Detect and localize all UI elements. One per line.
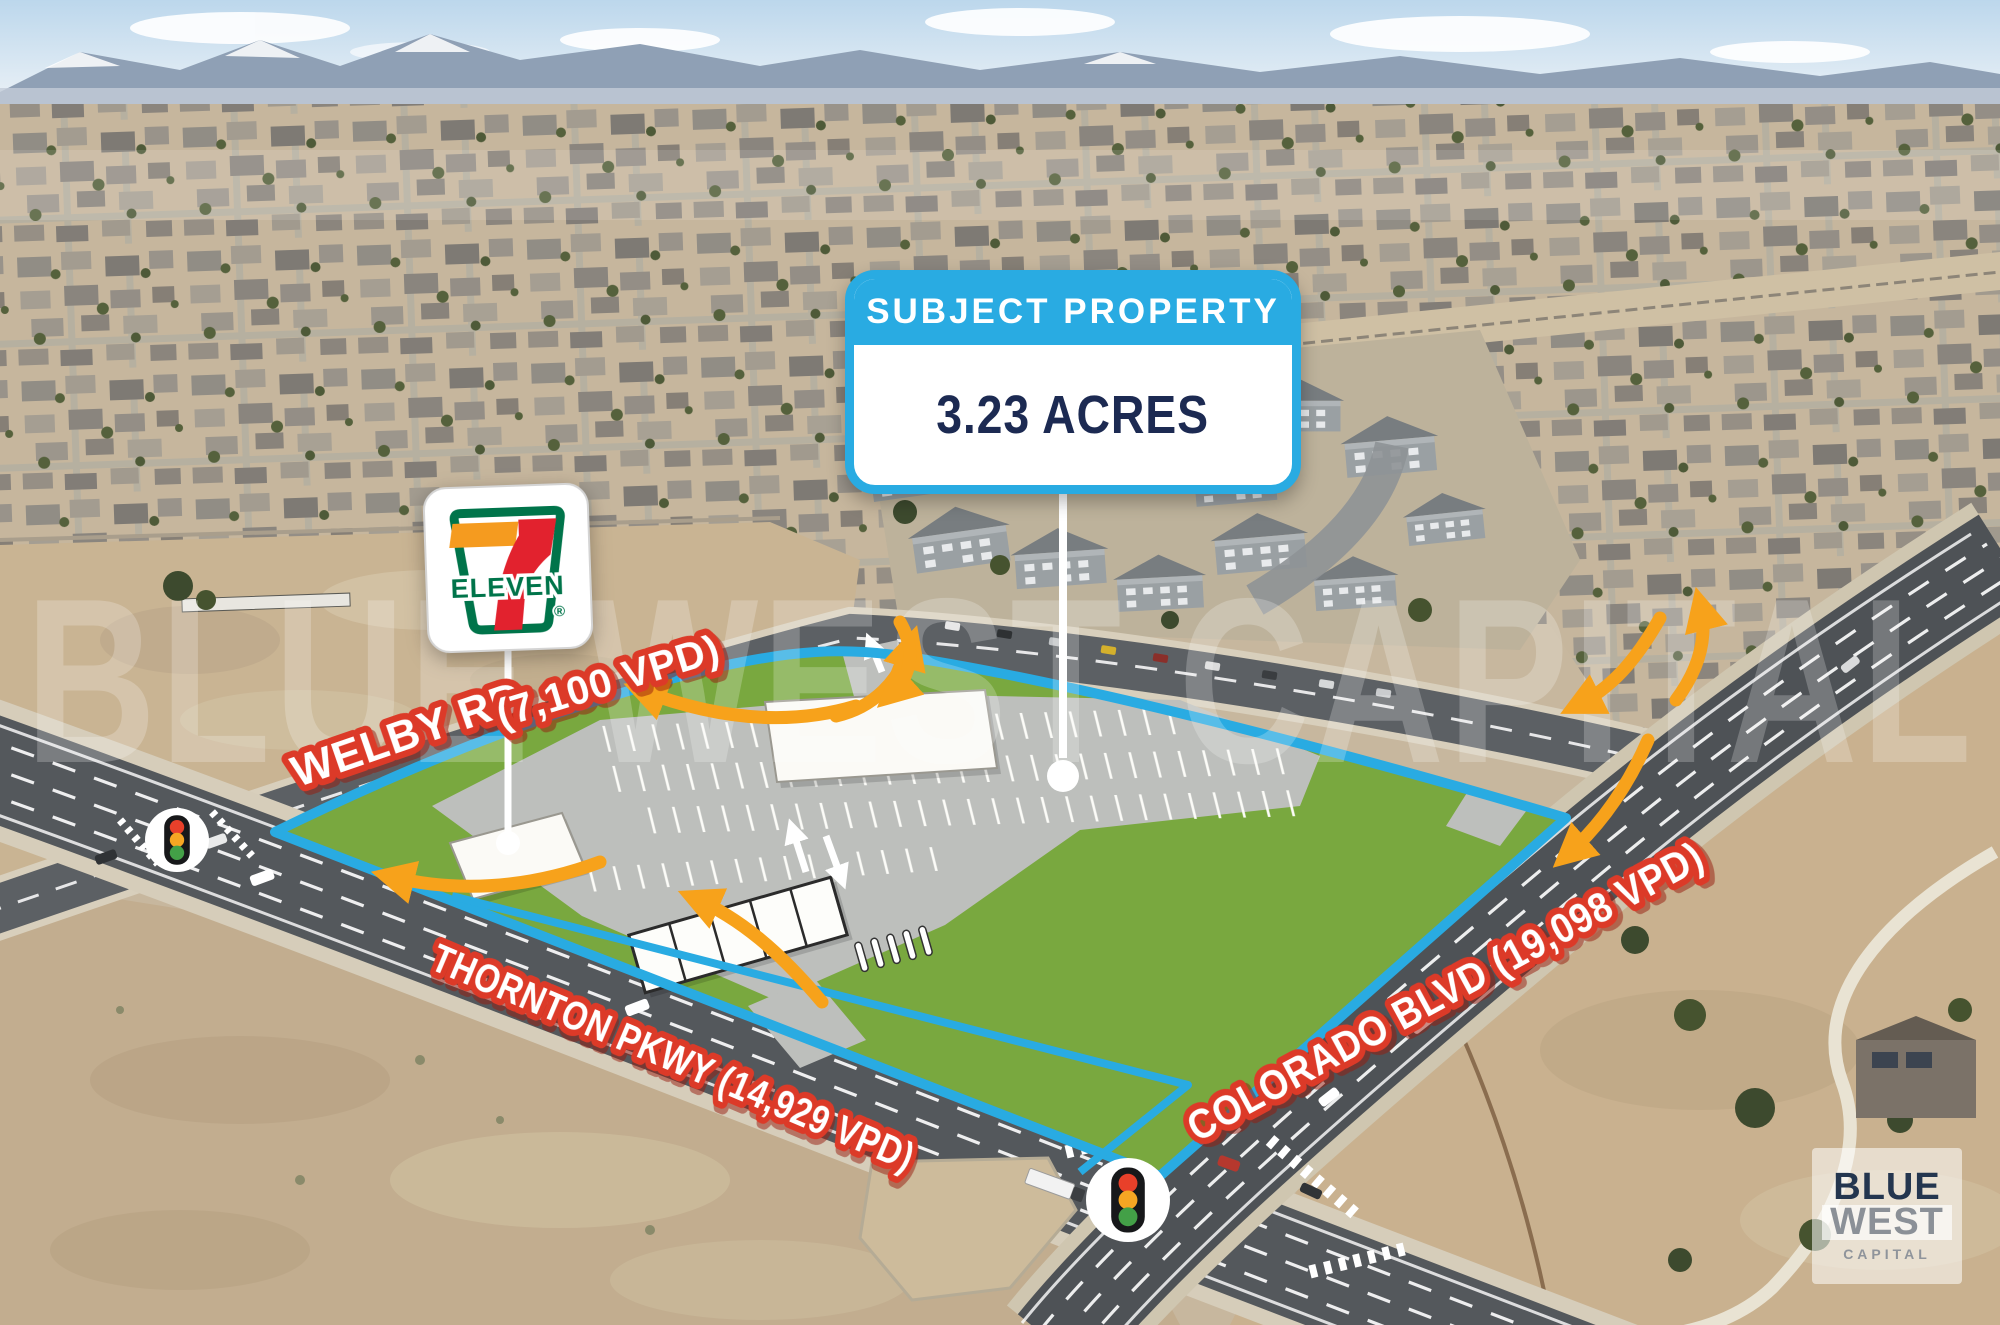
seven-eleven-logo: ELEVEN ® — [421, 481, 595, 655]
subject-property-callout: SUBJECT PROPERTY 3.23 ACRES — [845, 270, 1301, 494]
seven-eleven-sign: ELEVEN ® — [421, 481, 595, 655]
acreage-value: 3.23 ACRES — [937, 384, 1210, 446]
callout-body: 3.23 ACRES — [854, 345, 1292, 485]
broker-logo: BLUE WEST CAPITAL — [1812, 1148, 1962, 1284]
callout-header: SUBJECT PROPERTY — [854, 279, 1292, 345]
seven-eleven-pointer-dot — [496, 831, 520, 855]
callout-title: SUBJECT PROPERTY — [866, 292, 1280, 332]
aerial-property-map: BLUE WEST CAPITAL WELBY RD (7,100 VPD) T… — [0, 0, 2000, 1325]
traffic-light-icon — [145, 808, 209, 872]
subject-property-pointer-dot — [1047, 760, 1079, 792]
traffic-light-icon — [1086, 1158, 1170, 1242]
registered-mark: ® — [554, 603, 566, 620]
seven-numeral-bar — [448, 522, 519, 548]
atmospheric-haze — [0, 150, 2000, 220]
seven-eleven-wordmark: ELEVEN — [450, 570, 565, 604]
broker-logo-line-blue: BLUE — [1833, 1170, 1940, 1205]
broker-logo-line-west: WEST — [1822, 1205, 1952, 1240]
broker-logo-line-capital: CAPITAL — [1843, 1246, 1931, 1262]
aerial-scene: BLUE WEST CAPITAL WELBY RD (7,100 VPD) T… — [0, 0, 2000, 1325]
